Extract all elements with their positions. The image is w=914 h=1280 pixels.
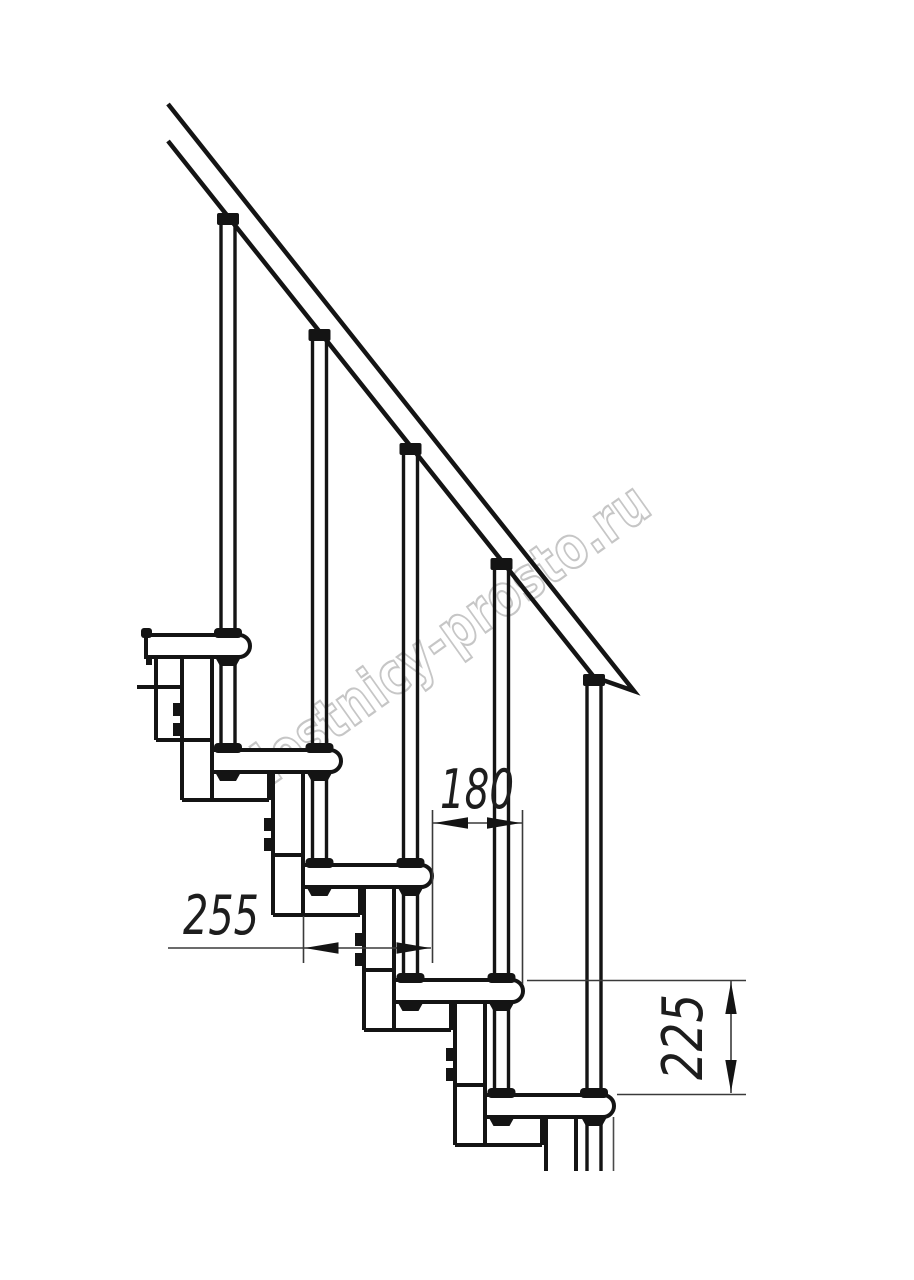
rod-cap: [400, 443, 422, 455]
tab: [446, 1048, 455, 1061]
flange: [306, 743, 334, 753]
arrowhead-left: [305, 942, 339, 954]
tread: [146, 635, 250, 657]
baluster-rod: [404, 446, 418, 980]
tab: [355, 953, 364, 966]
rod-cap: [491, 558, 513, 570]
tab: [446, 1068, 455, 1081]
flange: [397, 858, 425, 868]
baluster-rod: [313, 331, 327, 865]
dimension-rise: 225: [651, 981, 737, 1093]
baluster-rod: [221, 216, 235, 750]
nut: [581, 1117, 607, 1126]
tab: [173, 703, 182, 716]
handrail: [168, 104, 634, 691]
tab: [173, 723, 182, 736]
tread: [394, 980, 523, 1002]
dim-run-value: 180: [440, 758, 514, 821]
tab: [264, 838, 273, 851]
flange: [488, 1088, 516, 1098]
arrowhead-down: [725, 1060, 736, 1092]
nut: [489, 1002, 515, 1011]
arrowhead-right: [397, 942, 431, 954]
nut: [215, 657, 241, 666]
tread: [303, 865, 432, 887]
dim-depth-value: 255: [183, 884, 259, 947]
tread: [485, 1095, 614, 1117]
rod-cap: [309, 329, 331, 341]
arrowhead-up: [725, 982, 736, 1014]
flange: [397, 973, 425, 983]
tread: [212, 750, 341, 772]
dimension-run: 180: [433, 758, 522, 829]
flange: [306, 858, 334, 868]
flange: [214, 628, 242, 638]
tab: [264, 818, 273, 831]
dim-rise-value: 225: [651, 994, 716, 1080]
flange: [214, 743, 242, 753]
flange: [580, 1088, 608, 1098]
nut: [398, 887, 424, 896]
staircase-drawing: lestnicy-prosto.ru: [0, 0, 914, 1280]
tab: [355, 933, 364, 946]
flange: [141, 628, 152, 638]
nut: [307, 772, 333, 781]
rod-cap: [583, 674, 605, 686]
rod-cap: [217, 213, 239, 225]
staircase-drawing-canvas: lestnicy-prosto.ru: [0, 0, 914, 1280]
nut: [146, 657, 152, 665]
flange: [488, 973, 516, 983]
